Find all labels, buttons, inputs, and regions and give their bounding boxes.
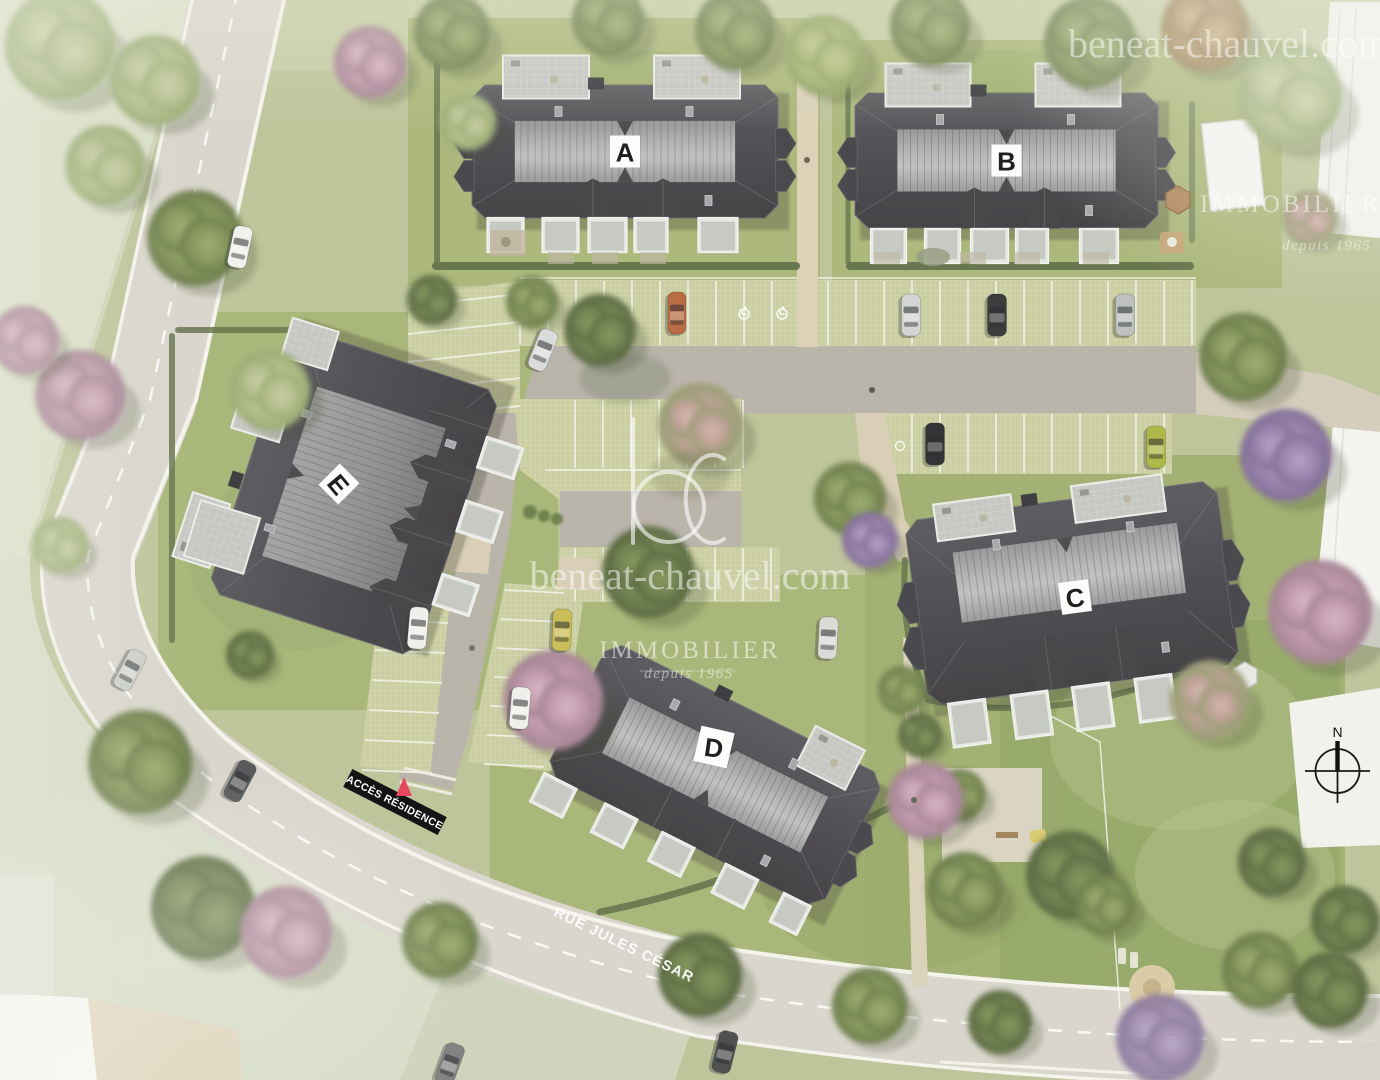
svg-text:IMMOBILIER: IMMOBILIER (1200, 191, 1380, 218)
svg-text:beneat-chauvel.com: beneat-chauvel.com (1068, 21, 1380, 66)
svg-text:depuis 1965: depuis 1965 (644, 666, 733, 682)
svg-text:N: N (1332, 724, 1342, 740)
svg-text:beneat-chauvel.com: beneat-chauvel.com (530, 553, 851, 598)
svg-text:IMMOBILIER: IMMOBILIER (599, 637, 780, 664)
svg-text:depuis 1965: depuis 1965 (1282, 238, 1371, 254)
